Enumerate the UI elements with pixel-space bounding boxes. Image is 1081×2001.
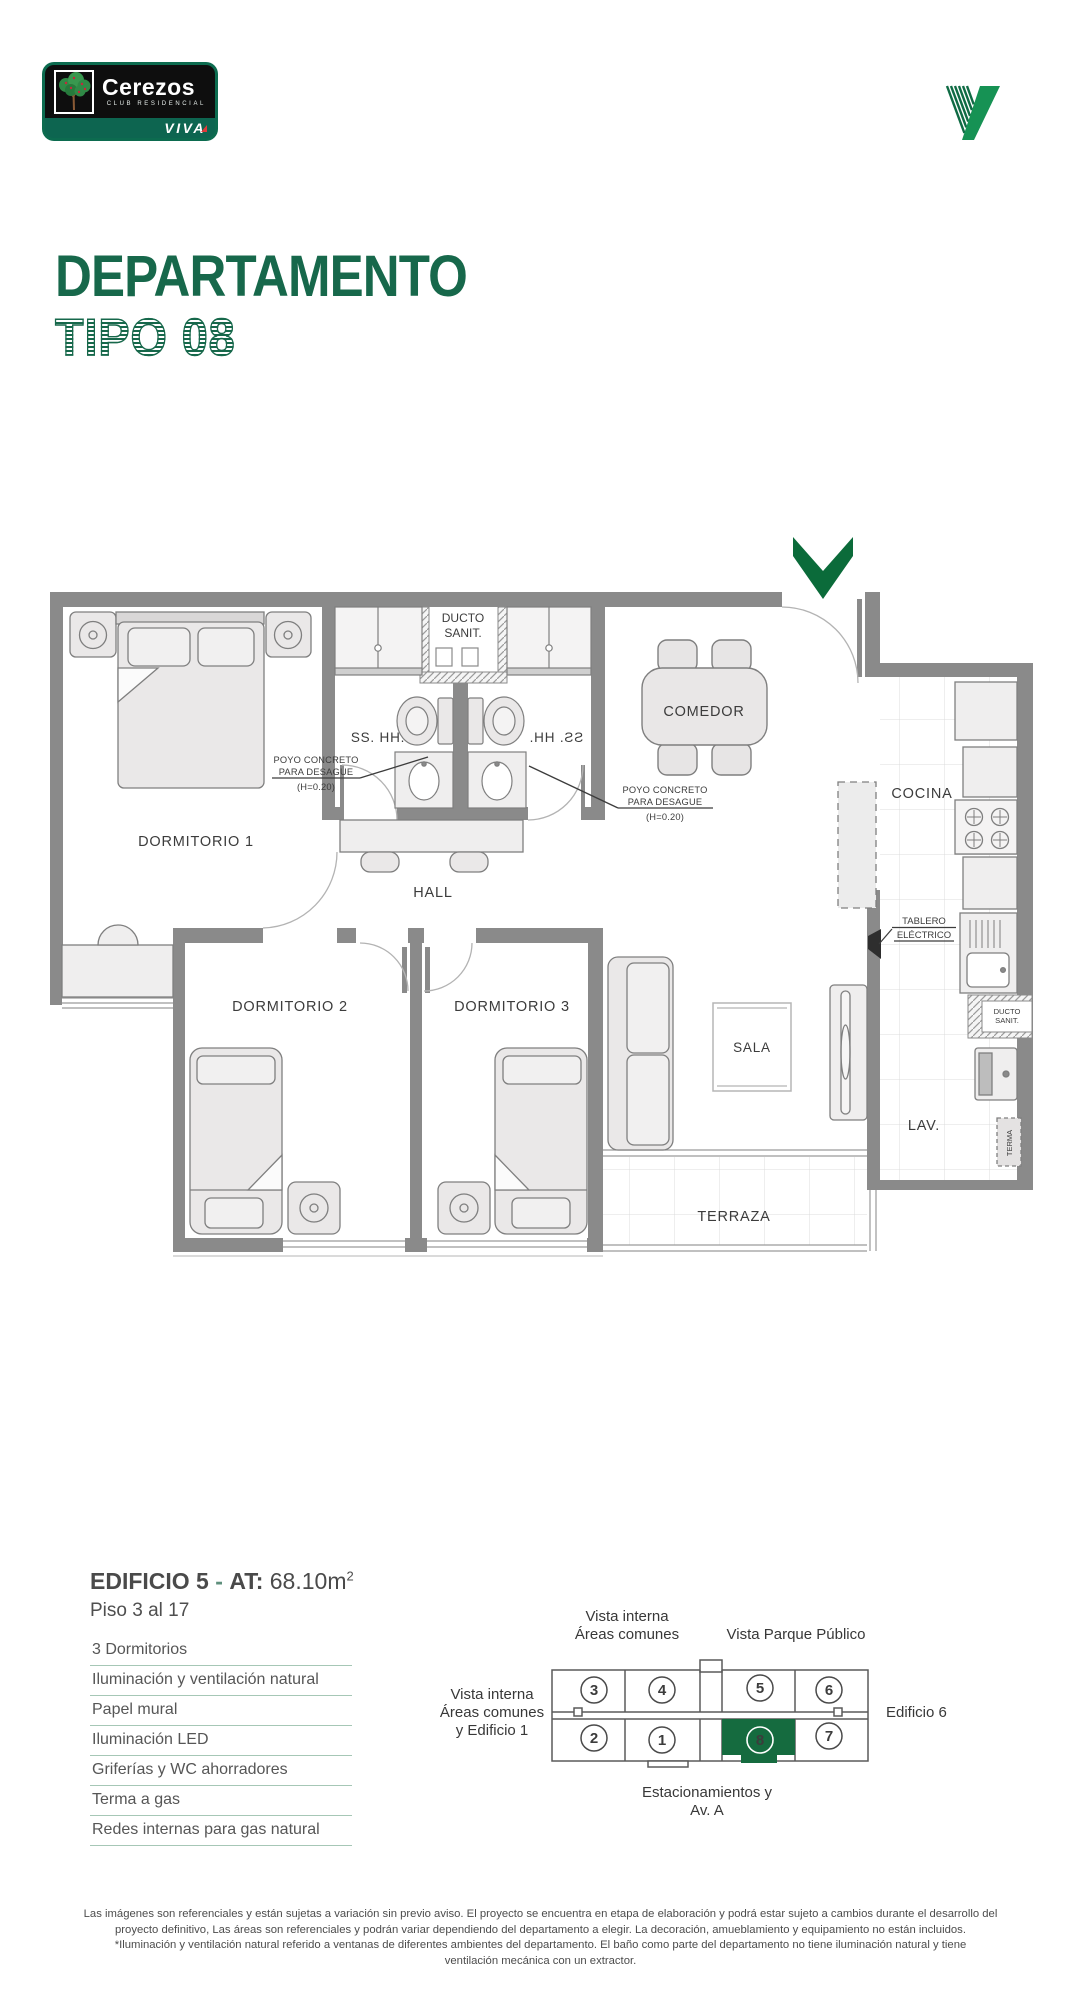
label-poyo-right-3: (H=0.20): [646, 812, 684, 822]
label-poyo-left-3: (H=0.20): [297, 782, 335, 792]
keyplan-label-bottom: Estacionamientos y Av. A: [612, 1784, 802, 1820]
page-subtitle: TIPO 08: [55, 308, 236, 368]
page-title: DEPARTAMENTO: [55, 243, 467, 310]
v-icon: [944, 84, 1004, 142]
label-poyo-left-2: PARA DESAGUE: [279, 767, 354, 777]
unit-number-6: 6: [825, 1682, 833, 1699]
unit-number-5: 5: [756, 1680, 764, 1697]
feature-item: Griferías y WC ahorradores: [90, 1756, 352, 1786]
unit-number-3: 3: [590, 1682, 598, 1699]
feature-item: Papel mural: [90, 1696, 352, 1726]
cerezos-logo: Cerezos CLUB RESIDENCIAL VIVA: [42, 62, 218, 141]
brand-tagline: CLUB RESIDENCIAL: [102, 101, 206, 107]
label-poyo-left-1: POYO CONCRETO: [273, 755, 358, 765]
hall-furniture: [340, 820, 523, 872]
room-label-sshh-left: SS. HH.: [351, 730, 405, 745]
floor-plan: DORMITORIO 1 DORMITORIO 2 DORMITORIO 3 H…: [30, 420, 1040, 1270]
unit-number-1: 1: [658, 1732, 666, 1749]
room-label-sala: SALA: [733, 1040, 771, 1055]
label-terma: TERMA: [1005, 1130, 1014, 1156]
keyplan-label-right: Edificio 6: [886, 1704, 976, 1722]
disclaimer: Las imágenes son referenciales y están s…: [43, 1907, 1038, 1969]
room-label-lavanderia: LAV.: [908, 1118, 940, 1134]
area-value: 68.10m: [270, 1568, 347, 1594]
keyplan-label-top-left: Vista interna Áreas comunes: [552, 1608, 702, 1644]
room-label-comedor: COMEDOR: [663, 704, 744, 720]
floors-range: Piso 3 al 17: [90, 1600, 189, 1622]
unit-summary: EDIFICIO 5 - AT: 68.10m2: [90, 1568, 354, 1595]
cerezos-logo-top: Cerezos CLUB RESIDENCIAL: [45, 65, 215, 118]
label-ducto-sanit-right-2: SANIT.: [995, 1016, 1019, 1025]
label-ducto-sanit-top-2: SANIT.: [444, 626, 481, 640]
feature-item: 3 Dormitorios: [90, 1636, 352, 1666]
label-ducto-sanit-right-1: DUCTO: [994, 1007, 1021, 1016]
viva-accent-triangle: [201, 125, 207, 132]
room-label-dormitorio-2: DORMITORIO 2: [232, 999, 348, 1015]
room-label-sshh-right-mirrored: SS. HH.: [529, 730, 583, 745]
label-poyo-right-1: POYO CONCRETO: [622, 785, 707, 795]
building-label: EDIFICIO 5: [90, 1568, 209, 1594]
brand-name: Cerezos: [102, 76, 206, 99]
room-label-dormitorio-3: DORMITORIO 3: [454, 999, 570, 1015]
area-label: AT:: [229, 1568, 263, 1594]
label-ducto-sanit-top-1: DUCTO: [442, 611, 484, 625]
unit-number-8: 8: [756, 1732, 764, 1749]
unit-number-2: 2: [590, 1730, 598, 1747]
area-exponent: 2: [346, 1568, 353, 1583]
room-label-terraza: TERRAZA: [697, 1209, 770, 1225]
label-poyo-right-2: PARA DESAGUE: [628, 797, 703, 807]
room-label-hall: HALL: [413, 885, 452, 901]
feature-item: Terma a gas: [90, 1786, 352, 1816]
cherry-tree-icon: [54, 70, 94, 114]
viva-wordmark: VIVA: [164, 121, 206, 135]
feature-item: Iluminación LED: [90, 1726, 352, 1756]
dormitorio3-furniture: [438, 1048, 587, 1234]
keyplan-outline: [552, 1660, 868, 1767]
viva-strip: VIVA: [45, 118, 215, 138]
room-label-dormitorio-1: DORMITORIO 1: [138, 834, 254, 850]
flyer-page: Cerezos CLUB RESIDENCIAL VIVA DEPARTAMEN…: [0, 0, 1081, 2001]
feature-item: Iluminación y ventilación natural: [90, 1666, 352, 1696]
dash: -: [215, 1568, 223, 1594]
label-tablero-2: ELÉCTRICO: [897, 930, 951, 941]
keyplan-label-left: Vista interna Áreas comunes y Edificio 1: [412, 1686, 572, 1740]
label-tablero-1: TABLERO: [902, 916, 946, 927]
unit-number-4: 4: [658, 1682, 667, 1699]
unit-number-7: 7: [825, 1728, 833, 1745]
room-label-cocina: COCINA: [891, 786, 952, 802]
entrance-arrow-icon: [793, 537, 853, 599]
features-list: 3 Dormitorios Iluminación y ventilación …: [90, 1636, 352, 1846]
dormitorio2-furniture: [190, 1048, 340, 1234]
keyplan-label-top-right: Vista Parque Público: [706, 1626, 886, 1644]
feature-item: Redes internas para gas natural: [90, 1816, 352, 1846]
